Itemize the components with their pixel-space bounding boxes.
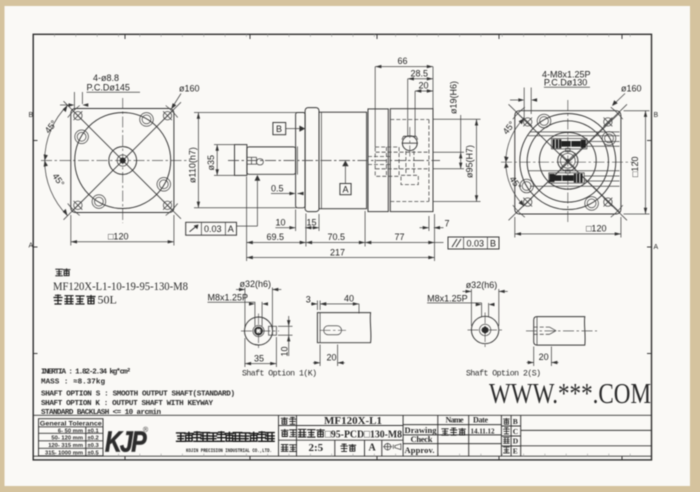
- svg-text:ø32(h6): ø32(h6): [240, 279, 272, 289]
- svg-text:±0.3: ±0.3: [88, 443, 100, 449]
- svg-text:®: ®: [143, 426, 149, 434]
- svg-text:69.5: 69.5: [267, 232, 285, 242]
- svg-text:77: 77: [395, 232, 405, 242]
- svg-text:A: A: [343, 185, 349, 195]
- svg-text:20: 20: [327, 353, 337, 363]
- svg-text:ø19(H6): ø19(H6): [449, 81, 459, 114]
- svg-text:STANDARD BACKLASH <= 10 arcmin: STANDARD BACKLASH <= 10 arcmin: [41, 409, 161, 417]
- svg-text:ø160: ø160: [621, 84, 642, 94]
- svg-text:±0.2: ±0.2: [88, 436, 99, 442]
- svg-text:□120: □120: [108, 232, 128, 242]
- svg-text:28.5: 28.5: [411, 68, 429, 78]
- svg-text:B: B: [513, 417, 518, 426]
- svg-text:KOJIN PRECISION INDUSTRIAL CO.: KOJIN PRECISION INDUSTRIAL CO.,LTD.: [186, 447, 272, 454]
- svg-text:Shaft Option 1(K): Shaft Option 1(K): [242, 369, 317, 379]
- svg-text:3: 3: [306, 294, 311, 304]
- svg-text:40: 40: [344, 294, 354, 304]
- svg-text:15: 15: [307, 217, 317, 227]
- svg-text:120- 315 mm: 120- 315 mm: [48, 443, 83, 449]
- svg-text:KJP: KJP: [105, 427, 147, 459]
- svg-text:4-ø8.8: 4-ø8.8: [93, 73, 119, 83]
- svg-text:Name: Name: [446, 416, 464, 425]
- svg-text:50- 120 mm: 50- 120 mm: [51, 436, 83, 442]
- svg-text:M8x1.25P: M8x1.25P: [208, 293, 249, 303]
- svg-text:70.5: 70.5: [328, 232, 346, 242]
- svg-text:A: A: [228, 224, 234, 234]
- svg-text:A: A: [369, 443, 377, 454]
- svg-text:Check: Check: [411, 434, 433, 444]
- svg-text:B: B: [29, 112, 34, 119]
- svg-text:A: A: [29, 243, 34, 250]
- svg-text:□120: □120: [630, 157, 640, 177]
- svg-text:WWW.***.COM: WWW.***.COM: [489, 379, 651, 410]
- svg-text:Date: Date: [473, 416, 488, 425]
- svg-text:66: 66: [398, 56, 408, 66]
- svg-text:□120: □120: [586, 223, 606, 233]
- svg-text:50L: 50L: [98, 293, 117, 307]
- svg-text:B: B: [490, 239, 496, 249]
- svg-text:0.5: 0.5: [271, 184, 284, 194]
- svg-text:□95-PCD□130-M8: □95-PCD□130-M8: [325, 428, 402, 440]
- svg-text:Approv.: Approv.: [405, 445, 435, 455]
- svg-text:M8x1.25P: M8x1.25P: [427, 293, 468, 303]
- svg-text:±0.1: ±0.1: [88, 428, 100, 434]
- svg-text:315- 1000 mm: 315- 1000 mm: [45, 451, 83, 457]
- svg-text:ø32(h6): ø32(h6): [466, 280, 498, 290]
- svg-text:6- 50 mm: 6- 50 mm: [58, 428, 83, 434]
- svg-text:MF120X-L1-10-19-95-130-M8: MF120X-L1-10-19-95-130-M8: [53, 279, 188, 293]
- svg-text:2:5: 2:5: [309, 442, 324, 454]
- svg-text:B: B: [654, 112, 659, 119]
- svg-text:0.03: 0.03: [204, 224, 222, 234]
- svg-text:7: 7: [445, 218, 450, 228]
- svg-text:P.C.Dø145: P.C.Dø145: [87, 83, 130, 93]
- svg-text:ø35: ø35: [206, 155, 216, 171]
- svg-text:20: 20: [419, 81, 429, 91]
- svg-text:MASS : ≈8.37kg: MASS : ≈8.37kg: [41, 378, 105, 386]
- svg-text:ø110(h7): ø110(h7): [188, 147, 198, 183]
- svg-text:10: 10: [280, 346, 290, 356]
- svg-text:35: 35: [254, 353, 264, 363]
- svg-text:SHAFT OPTION S : SMOOTH OUTPUT: SHAFT OPTION S : SMOOTH OUTPUT SHAFT(STA…: [41, 390, 235, 398]
- svg-text:SHAFT OPTION K : OUTPUT SHAFT: SHAFT OPTION K : OUTPUT SHAFT WITH KEYWA…: [41, 400, 213, 408]
- svg-text:±0.5: ±0.5: [88, 451, 100, 457]
- svg-text:Shaft Option 2(S): Shaft Option 2(S): [466, 369, 541, 379]
- svg-text:General Tolerance: General Tolerance: [40, 421, 102, 428]
- svg-text:P.C.Dø130: P.C.Dø130: [544, 78, 587, 88]
- svg-text:MF120X-L1: MF120X-L1: [324, 415, 382, 427]
- svg-text:ø160: ø160: [179, 84, 200, 94]
- svg-text:INERTIA : 1.82-2.34 kg*cm²: INERTIA : 1.82-2.34 kg*cm²: [41, 367, 131, 376]
- svg-text:ø95(H7): ø95(H7): [465, 145, 475, 178]
- svg-text:0.03: 0.03: [467, 239, 485, 249]
- svg-text:217: 217: [330, 247, 345, 257]
- svg-text:20: 20: [539, 352, 549, 362]
- svg-text:10: 10: [276, 217, 286, 227]
- svg-text:E: E: [513, 446, 518, 455]
- svg-text:14.11.12: 14.11.12: [471, 428, 496, 436]
- svg-text:C: C: [513, 427, 518, 436]
- svg-text:A: A: [654, 244, 659, 251]
- svg-text:D: D: [513, 437, 519, 446]
- svg-text:B: B: [276, 124, 282, 134]
